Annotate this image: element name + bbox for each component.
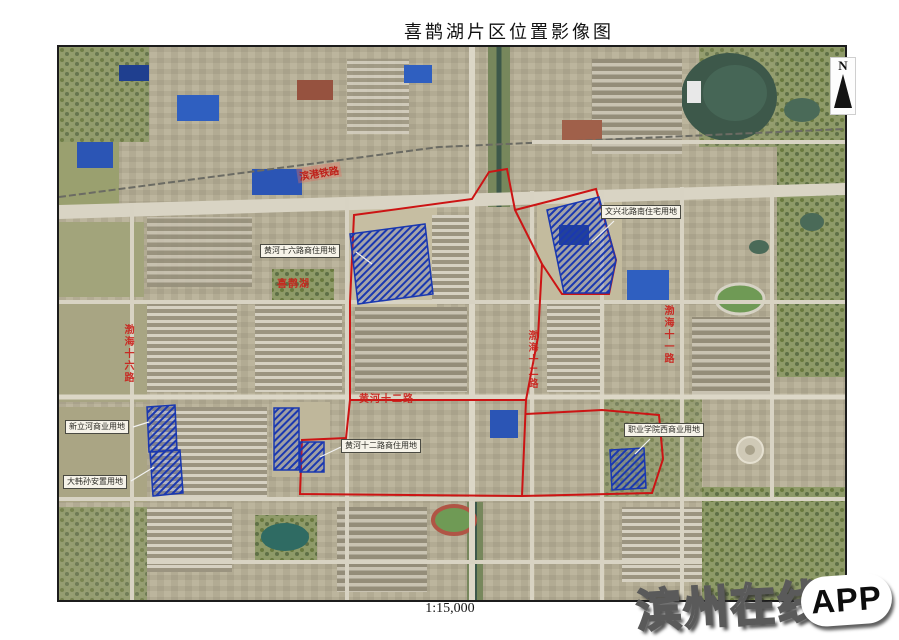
page: { "title": "喜鹊湖片区位置影像图", "scale": "1:15,… [0, 0, 899, 636]
map-frame: 黄河十六路商住用地 文兴北路南住宅用地 新立河商业用地 大韩孙安置用地 黄河十二… [57, 45, 847, 602]
parcel-label-college-west: 职业学院西商业用地 [624, 423, 704, 437]
north-arrow-label: N [838, 58, 847, 73]
lake-label-xiquehu: 喜鹊湖 [277, 275, 310, 290]
road-label-bohai12: 渤海十二路 [524, 330, 539, 390]
road-label-huanghe12: 黄河十二路 [359, 390, 414, 405]
watermark-brand: 滨州在线 [634, 565, 825, 640]
north-arrow: N [830, 57, 856, 115]
satellite-map [59, 47, 845, 600]
parcel-label-northeast: 文兴北路南住宅用地 [601, 205, 681, 219]
parcel-label-xinlihe: 新立河商业用地 [65, 420, 129, 434]
parcel-label-huanghe12: 黄河十二路商住用地 [341, 439, 421, 453]
parcel-label-dahansun: 大韩孙安置用地 [63, 475, 127, 489]
watermark-app-badge: APP [799, 572, 893, 628]
north-arrow-icon [834, 74, 852, 108]
parcel-label-huanghe16: 黄河十六路商住用地 [260, 244, 340, 258]
road-label-bohai11: 渤海十一路 [660, 305, 675, 365]
road-label-bohai16: 渤海十六路 [120, 324, 135, 384]
watermark-app-text: APP [810, 579, 883, 622]
page-title: 喜鹊湖片区位置影像图 [404, 18, 614, 44]
